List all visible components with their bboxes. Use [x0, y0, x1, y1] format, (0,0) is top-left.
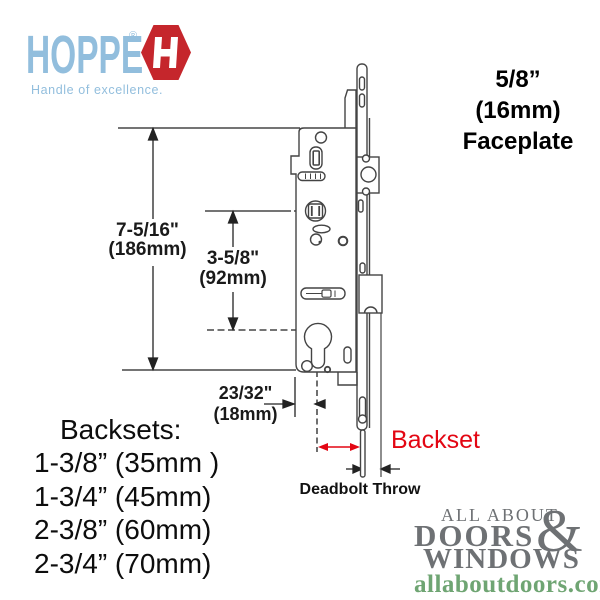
backset-option: 2-3/4” (70mm)	[34, 547, 219, 580]
deadbolt	[359, 275, 382, 313]
backset-arrow	[318, 443, 360, 451]
backsets-list: Backsets: 1-3/8” (35mm ) 1-3/4” (45mm) 2…	[34, 413, 219, 580]
backset-option: 1-3/8” (35mm )	[34, 446, 219, 479]
backsets-title: Backsets:	[34, 413, 219, 446]
gearbox-housing	[345, 90, 356, 130]
dimension-total-imperial: 7-5/16"	[95, 221, 200, 240]
backset-option: 1-3/4” (45mm)	[34, 480, 219, 513]
dimension-cylinder-height: 3-5/8" (92mm)	[183, 249, 283, 288]
lock-body	[291, 64, 382, 477]
backset-label: Backset	[391, 426, 480, 455]
faceplate-rod	[357, 64, 367, 430]
dimension-cylinder-imperial: 3-5/8"	[183, 249, 283, 269]
watermark-site-url: allaboutdoors.com	[414, 571, 600, 599]
product-diagram-page: HOPPE ® Handle of excellence. 5/8” (16mm…	[0, 0, 600, 600]
backset-option: 2-3/8” (60mm)	[34, 513, 219, 546]
deadbolt-throw-label: Deadbolt Throw	[294, 481, 426, 499]
dimension-offset-imperial: 23/32"	[193, 383, 298, 404]
lower-bracket	[338, 372, 357, 385]
cam-roller	[357, 155, 379, 195]
dimension-cylinder-metric: (92mm)	[183, 269, 283, 289]
shift-rod	[361, 430, 366, 477]
